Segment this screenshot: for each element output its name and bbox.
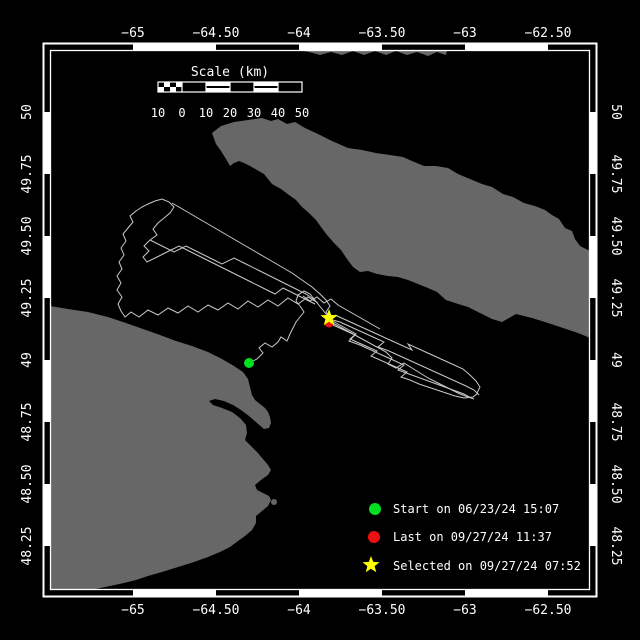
frame-band-segment bbox=[465, 590, 548, 596]
scale-bar-title: Scale (km) bbox=[191, 65, 269, 80]
lat-label-left: 49.75 bbox=[20, 154, 35, 193]
lon-label-top: −63.50 bbox=[359, 26, 406, 41]
lat-label-right: 49.50 bbox=[608, 216, 623, 255]
lat-label-left: 48.75 bbox=[20, 402, 35, 441]
scale-label: 10 bbox=[199, 106, 213, 120]
lat-label-right: 49 bbox=[608, 352, 623, 368]
frame-band-segment bbox=[133, 45, 216, 51]
lat-label-left: 48.25 bbox=[20, 526, 35, 565]
scale-checker-cell bbox=[170, 82, 176, 87]
legend-start-label: Start on 06/23/24 15:07 bbox=[393, 502, 559, 516]
frame-band-segment bbox=[465, 45, 548, 51]
frame-band-segment bbox=[45, 236, 51, 298]
scale-checker-cell bbox=[164, 82, 170, 87]
lon-label-bottom: −65 bbox=[121, 603, 144, 618]
lat-label-left: 49.50 bbox=[20, 216, 35, 255]
lat-label-left: 48.50 bbox=[20, 464, 35, 503]
lon-label-top: −64.50 bbox=[193, 26, 240, 41]
lat-label-left: 49 bbox=[20, 352, 35, 368]
legend-last-dot-icon bbox=[368, 531, 380, 543]
frame-band-segment bbox=[133, 590, 216, 596]
lat-label-right: 48.25 bbox=[608, 526, 623, 565]
scale-label: 30 bbox=[247, 106, 261, 120]
lat-label-right: 49.25 bbox=[608, 278, 623, 317]
frame-band-segment bbox=[45, 360, 51, 422]
scale-label: 40 bbox=[271, 106, 285, 120]
lon-label-bottom: −62.50 bbox=[525, 603, 572, 618]
lon-label-top: −63 bbox=[453, 26, 476, 41]
lat-label-right: 50 bbox=[608, 104, 623, 120]
lat-label-right: 48.75 bbox=[608, 402, 623, 441]
frame-band-segment bbox=[590, 360, 596, 422]
scale-label: 20 bbox=[223, 106, 237, 120]
frame-band-segment bbox=[590, 236, 596, 298]
frame-band-segment bbox=[45, 484, 51, 546]
lon-label-bottom: −64.50 bbox=[193, 603, 240, 618]
frame-band-segment bbox=[45, 112, 51, 174]
lon-label-top: −65 bbox=[121, 26, 144, 41]
scale-checker-cell bbox=[158, 87, 164, 92]
lat-label-left: 50 bbox=[20, 104, 35, 120]
legend-last-label: Last on 09/27/24 11:37 bbox=[393, 530, 552, 544]
scale-label: 0 bbox=[178, 106, 185, 120]
scale-checker-cell bbox=[158, 82, 164, 87]
frame-band-segment bbox=[590, 484, 596, 546]
frame-band-segment bbox=[590, 112, 596, 174]
scale-label: 10 bbox=[151, 106, 165, 120]
scale-label: 50 bbox=[295, 106, 309, 120]
scale-checker-cell bbox=[176, 82, 182, 87]
lon-label-bottom: −63 bbox=[453, 603, 476, 618]
scale-checker-cell bbox=[170, 87, 176, 92]
legend-selected-label: Selected on 09/27/24 07:52 bbox=[393, 559, 581, 573]
scale-checker-cell bbox=[164, 87, 170, 92]
track-map-figure: −65−65−64.50−64.50−64−64−63.50−63.50−63−… bbox=[0, 0, 640, 640]
frame-band-segment bbox=[299, 45, 382, 51]
lon-label-bottom: −64 bbox=[287, 603, 311, 618]
legend-start-dot-icon bbox=[369, 503, 381, 515]
lat-label-right: 49.75 bbox=[608, 154, 623, 193]
lat-label-left: 49.25 bbox=[20, 278, 35, 317]
scale-segment-stripe bbox=[206, 86, 230, 88]
lon-label-bottom: −63.50 bbox=[359, 603, 406, 618]
scale-checker-cell bbox=[176, 87, 182, 92]
frame-band-segment bbox=[299, 590, 382, 596]
map-window: −65−65−64.50−64.50−64−64−63.50−63.50−63−… bbox=[0, 0, 640, 640]
lat-label-right: 48.50 bbox=[608, 464, 623, 503]
scale-segment-stripe bbox=[254, 86, 278, 88]
legend: Start on 06/23/24 15:07 Last on 09/27/24… bbox=[362, 502, 580, 573]
lon-label-top: −64 bbox=[287, 26, 311, 41]
lon-label-top: −62.50 bbox=[525, 26, 572, 41]
